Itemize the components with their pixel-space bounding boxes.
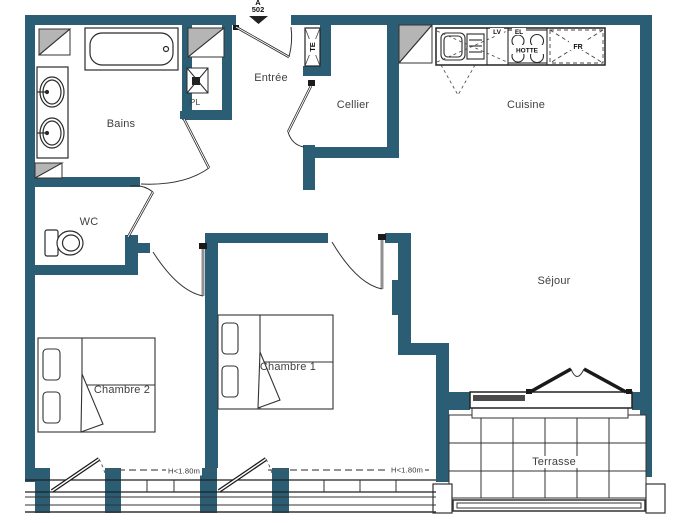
window-pier-3	[200, 468, 217, 513]
entrance-door-part	[236, 27, 289, 57]
toilet-part	[45, 230, 58, 256]
wall-chambre2-chambre1	[205, 233, 218, 468]
cellier-door-part	[288, 132, 304, 147]
terrace	[433, 369, 665, 513]
wall-cellier-right	[387, 25, 399, 158]
wall-top-left	[25, 15, 236, 25]
bains-door	[141, 111, 209, 184]
double-washbasin-part	[46, 132, 49, 135]
floor-plan-drawing: TE LV EL	[0, 0, 678, 523]
unit-marker-number: 502	[252, 6, 265, 13]
double-washbasin-part	[46, 91, 49, 94]
room-label-chambre1: Chambre 1	[260, 361, 316, 373]
fr-label: FR	[573, 44, 582, 51]
wall-chambre1-pier	[392, 280, 398, 315]
entrance-arrow-icon	[249, 16, 268, 24]
window-pier-1	[35, 468, 50, 513]
cellier-door-part	[308, 80, 315, 86]
entrance-door-part	[289, 27, 292, 57]
shaft-cuisine-corner	[399, 25, 432, 63]
el-label: EL	[515, 29, 523, 36]
casement-window-1	[52, 459, 106, 491]
wall-terrace-door-jamb-left	[449, 392, 470, 410]
room-label-chambre2: Chambre 2	[94, 384, 150, 396]
room-label-sejour: Séjour	[538, 275, 571, 287]
bathtub	[85, 28, 178, 70]
window-height-note-2: H<1.80m	[389, 466, 425, 475]
terrace-french-door-part	[626, 389, 632, 394]
te-electrical-box: TE	[305, 28, 320, 66]
fixed-window-mullions	[147, 480, 396, 492]
pillow	[43, 392, 60, 423]
terrace-french-door	[470, 369, 632, 408]
casement-window-2	[219, 459, 273, 491]
wall-wc-door-stub	[125, 235, 138, 275]
pillow	[43, 349, 60, 380]
shaft-entree-corner	[188, 28, 224, 57]
te-label: TE	[308, 42, 317, 52]
terrace-french-door-part	[473, 395, 525, 401]
bathtub-part	[90, 33, 173, 65]
floor-plan: TE LV EL	[0, 0, 678, 523]
chambre2-door-part	[199, 243, 207, 249]
wall-wc-bottom	[25, 265, 138, 275]
wall-chambre1-top	[205, 233, 328, 243]
shaft-bains-corner	[39, 29, 70, 55]
pillow	[222, 366, 238, 397]
window-pier-4	[272, 468, 289, 513]
room-label-wc: WC	[80, 216, 99, 228]
room-label-entree: Entrée	[254, 72, 288, 84]
pl-closet-symbol	[187, 68, 208, 93]
bathtub-part	[164, 47, 169, 52]
chambre2-door	[153, 243, 207, 296]
shaft-wc-corner	[35, 163, 62, 178]
window-height-note-1: H<1.80m	[166, 467, 202, 476]
bains-door-part	[184, 119, 209, 168]
wall-chambre2-top	[138, 243, 150, 253]
hotte-label: HOTTE	[516, 48, 539, 55]
terrace-railing-inner	[457, 503, 641, 508]
wall-pl-bottom	[182, 110, 232, 120]
wall-sejour-step	[398, 343, 449, 355]
wall-chambre1-sejour	[398, 233, 411, 355]
railing-post-left	[433, 484, 452, 513]
dishwasher-dashed-part	[441, 65, 475, 95]
room-label-terrasse: Terrasse	[530, 456, 578, 468]
wall-terrace-door-jamb-right	[632, 392, 640, 410]
pl-closet-symbol-part	[192, 77, 200, 85]
room-label-bains: Bains	[107, 118, 136, 130]
wall-te-frame-bottom	[303, 66, 331, 76]
kitchen-counter: LV EL HOTTE FR	[436, 28, 605, 95]
double-washbasin	[37, 67, 68, 158]
entrance-door	[233, 25, 292, 57]
wc-door-part	[128, 192, 153, 237]
room-label-cuisine: Cuisine	[507, 99, 545, 111]
chambre2-door-part	[153, 252, 203, 296]
casement-window-1-part	[99, 459, 106, 481]
railing-post-right	[646, 484, 665, 513]
toilet	[45, 230, 83, 256]
terrace-french-door-part	[571, 369, 584, 377]
room-label-cellier: Cellier	[337, 99, 370, 111]
chambre1-door	[332, 234, 386, 289]
pillow	[222, 323, 238, 354]
cellier-door-part	[288, 86, 311, 132]
room-label-pl: PL	[190, 97, 201, 107]
wall-cellier-bottom	[303, 147, 399, 158]
toilet-part	[63, 235, 80, 251]
terrace-french-door-part	[584, 369, 626, 392]
window-pier-2	[105, 468, 121, 513]
cellier-door	[288, 80, 315, 147]
wc-door	[128, 186, 153, 237]
bains-door-part	[141, 168, 209, 184]
chambre1-door-part	[332, 242, 382, 289]
wall-terrace-left	[436, 355, 449, 482]
chambre1-door-part	[378, 234, 386, 240]
terrace-french-door-part	[530, 369, 571, 392]
casement-window-2-part	[219, 459, 266, 491]
wall-top-right	[291, 15, 652, 25]
lv-label: LV	[493, 29, 501, 36]
wall-left	[25, 15, 35, 482]
bains-door-part	[180, 111, 188, 119]
wall-right	[640, 15, 652, 477]
casement-window-1-part	[52, 459, 99, 491]
